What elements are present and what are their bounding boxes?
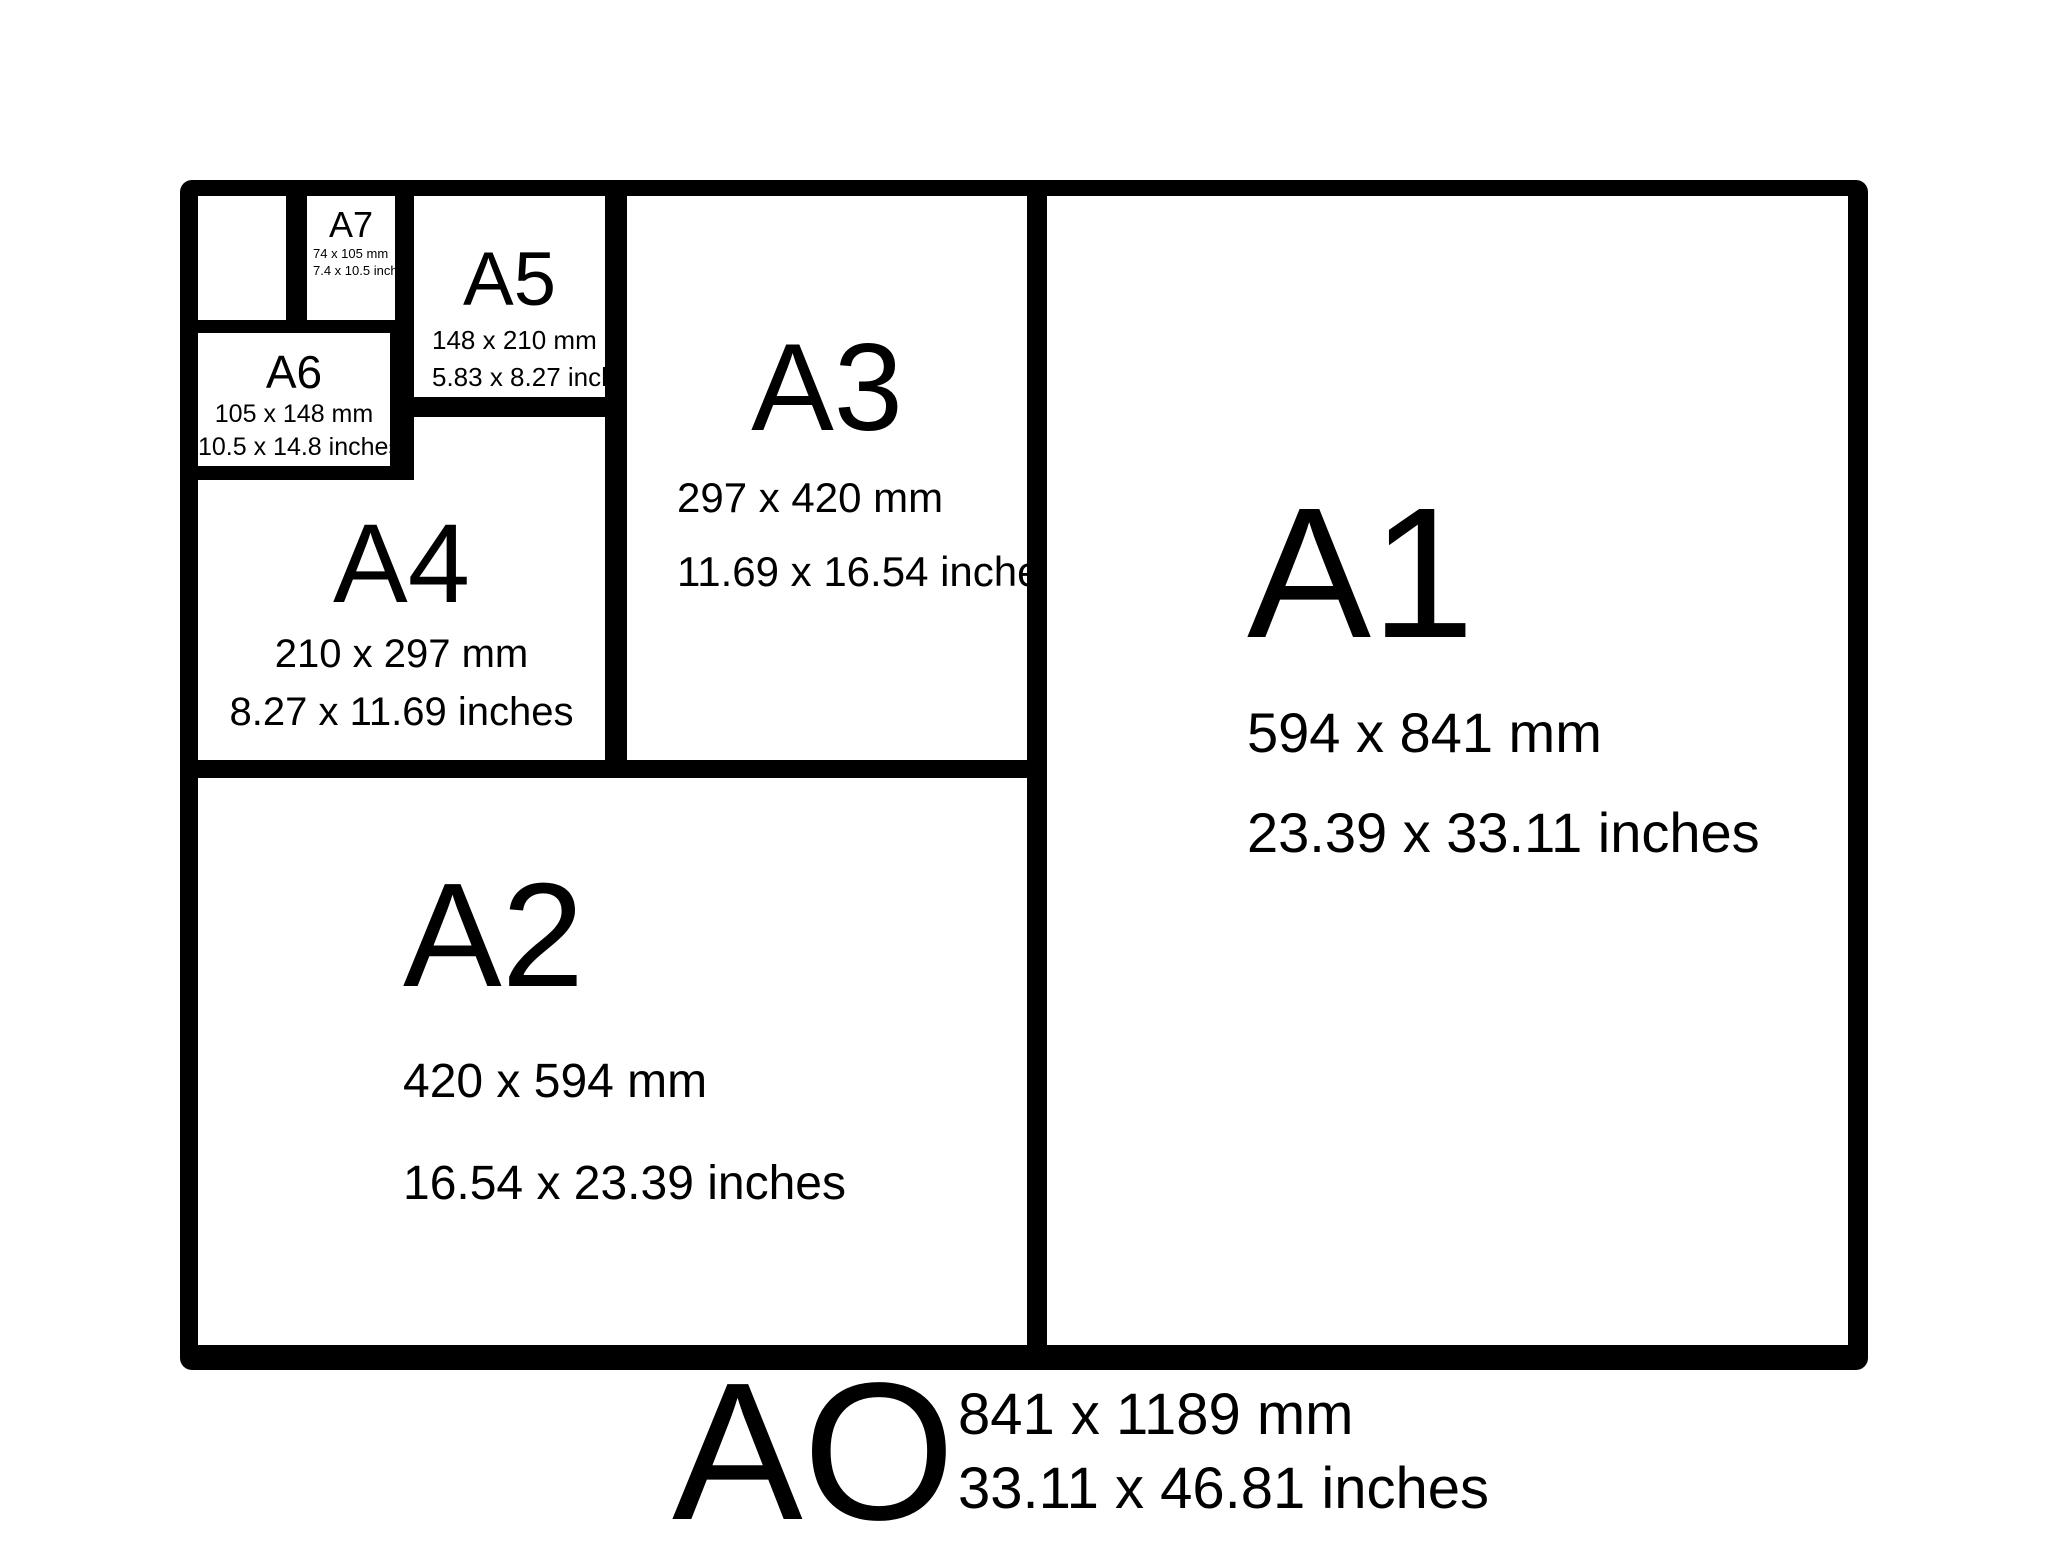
paper-size-mm-a5: 148 x 210 mm	[414, 324, 605, 357]
a0-frame: A7 74 x 105 mm 7.4 x 10.5 inches A5 148 …	[180, 180, 1868, 1370]
paper-label-a6: A6	[198, 347, 390, 397]
paper-size-inches-a4: 8.27 x 11.69 inches	[198, 686, 605, 738]
paper-size-mm-a2: 420 x 594 mm	[198, 1050, 1027, 1114]
paper-size-mm-a3: 297 x 420 mm	[627, 470, 1027, 526]
paper-size-mm-a4: 210 x 297 mm	[198, 628, 605, 680]
paper-box-a3: A3 297 x 420 mm 11.69 x 16.54 inches	[627, 196, 1027, 760]
footer-label-a0: AO	[672, 1352, 955, 1552]
paper-size-inches-a0: 33.11 x 46.81 inches	[958, 1452, 1489, 1526]
paper-box-a1: A1 594 x 841 mm 23.39 x 33.11 inches	[1047, 196, 1848, 1345]
paper-label-a1: A1	[1047, 478, 1848, 670]
paper-size-mm-a1: 594 x 841 mm	[1047, 696, 1848, 770]
paper-size-inches-a5: 5.83 x 8.27 inches	[414, 361, 605, 394]
paper-label-a2: A2	[198, 860, 1027, 1012]
paper-box-a6: A6 105 x 148 mm 10.5 x 14.8 inches	[198, 333, 390, 466]
paper-size-mm-a7: 74 x 105 mm	[307, 246, 395, 261]
paper-label-a7: A7	[307, 206, 395, 244]
paper-label-a4: A4	[198, 506, 605, 622]
paper-size-inches-a6: 10.5 x 14.8 inches	[198, 432, 390, 463]
paper-label-a5: A5	[414, 240, 605, 320]
paper-box-a7: A7 74 x 105 mm 7.4 x 10.5 inches	[307, 196, 395, 320]
paper-box-a8-unlabeled	[198, 196, 286, 320]
paper-size-mm-a0: 841 x 1189 mm	[958, 1378, 1489, 1452]
paper-box-a5: A5 148 x 210 mm 5.83 x 8.27 inches	[414, 196, 605, 397]
paper-size-mm-a6: 105 x 148 mm	[198, 399, 390, 430]
paper-label-a3: A3	[627, 324, 1027, 452]
paper-box-a4-extension	[414, 417, 605, 481]
footer-dimensions-a0: 841 x 1189 mm 33.11 x 46.81 inches	[958, 1378, 1489, 1526]
paper-size-inches-a3: 11.69 x 16.54 inches	[627, 544, 1027, 600]
paper-size-inches-a1: 23.39 x 33.11 inches	[1047, 796, 1848, 870]
paper-box-a4: A4 210 x 297 mm 8.27 x 11.69 inches	[198, 480, 605, 760]
paper-box-a2: A2 420 x 594 mm 16.54 x 23.39 inches	[198, 778, 1027, 1345]
paper-size-inches-a7: 7.4 x 10.5 inches	[307, 263, 395, 278]
paper-size-inches-a2: 16.54 x 23.39 inches	[198, 1152, 1027, 1216]
